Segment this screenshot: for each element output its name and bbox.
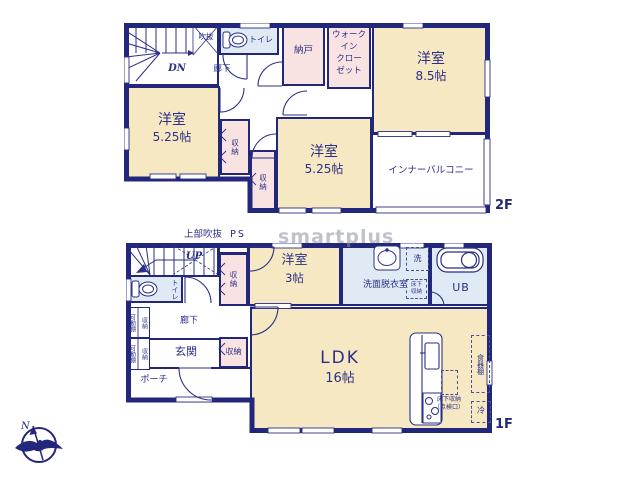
hallway-1f-label: 廊下 [172,316,206,328]
closet-entrance-label: 収納 [219,347,248,357]
pipe-shaft [219,243,248,253]
fridge-label: 冷 [471,406,491,416]
shelf-top-label: 可動棚 [128,314,137,332]
toilet-1f-label: トイレ [170,279,180,300]
closet-2f-b-label: 収納 [258,174,269,191]
porch-label: ポーチ [132,375,176,387]
underfloor-storage-kitchen-box [441,370,458,395]
shelf-bottom-closet-label: 収納 [140,348,149,360]
stairs-up-label: UP [182,250,206,263]
inner-balcony-label: インナーバルコニー [372,165,490,177]
bedroom-5-25-mid-name: 洋室 [276,143,372,161]
ldk-size: 16帖 [250,371,430,388]
shelf-top-closet-label: 収納 [140,317,149,329]
room-unit-bath [430,243,492,306]
underfloor-storage-washroom-label: 床下収納 [409,282,424,296]
cupboard-label: 食器棚 [476,354,486,375]
washer-label: 洗 [406,254,429,264]
closet-hall-label: 収納 [228,271,239,288]
floor-1-tag: 1F [495,417,513,432]
pipe-shaft-label: PS [226,229,250,241]
hallway-2f-label: 廊下 [208,64,236,75]
floor-2-plan: 吹抜 トイレ DN 廊下 納戸 ウォーク イン クロー ゼット 洋室 8.5帖 … [124,23,492,215]
floor-1-plan: UP 収納 洋室 3帖 洗面脱衣室 洗 床下収納 UB トイレ 可動棚 収納 可… [126,243,494,435]
bedroom-5-25-left-name: 洋室 [124,111,220,129]
floor-2-tag: 2F [495,198,513,213]
shelf-bottom-label: 可動棚 [128,345,137,363]
ldk-name: LDK [250,347,430,369]
underfloor-storage-kitchen-label2: （点検口） [426,404,472,412]
toilet-2f-label: トイレ [244,35,278,45]
bedroom-5-25-mid-size: 5.25帖 [276,162,372,178]
floorplan-canvas: 吹抜 トイレ DN 廊下 納戸 ウォーク イン クロー ゼット 洋室 8.5帖 … [0,0,640,480]
wic-label-line1: ウォーク [327,30,371,41]
void-label: 吹抜 [191,32,221,42]
wic-label-line4: ゼット [327,66,371,77]
bedroom-8-5-name: 洋室 [372,50,490,68]
underfloor-storage-kitchen-label1: 床下収納 [426,396,472,404]
bedroom-3-name: 洋室 [248,253,341,270]
upper-void-label: 上部吹抜 [177,229,229,241]
genkan-label: 玄関 [164,345,208,359]
stairs-dn-label: DN [164,62,190,75]
unit-bath-label: UB [430,281,492,295]
bedroom-8-5-size: 8.5帖 [372,69,490,85]
closet-2f-a-label: 収納 [230,139,241,156]
wic-label-line2: イン [327,42,371,53]
watermark: smartplus [278,226,394,248]
compass-north-label: N [20,421,31,432]
bedroom-5-25-left-size: 5.25帖 [124,130,220,146]
compass-icon: N [12,414,66,470]
storage-nando-label: 納戸 [282,45,325,57]
wic-label-line3: クロー [327,54,371,65]
bedroom-3-size: 3帖 [248,271,341,286]
